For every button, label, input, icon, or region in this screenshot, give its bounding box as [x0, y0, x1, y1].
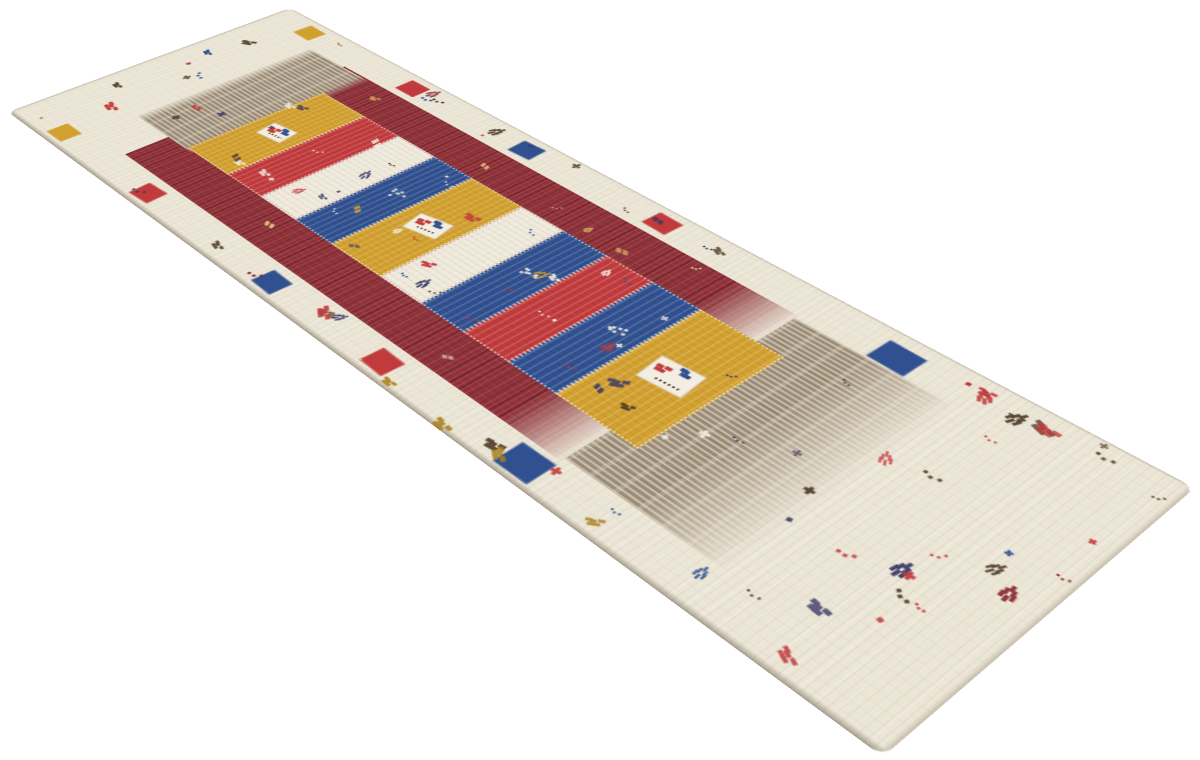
border-square-top-0 — [293, 25, 327, 41]
motif-sq — [39, 117, 43, 119]
rug — [8, 8, 1195, 757]
motif-dots — [622, 277, 626, 279]
motif-star — [187, 63, 190, 64]
motif-animal — [1040, 425, 1052, 432]
motif-dots — [897, 589, 902, 592]
motif-dots — [835, 549, 841, 553]
edge-near — [876, 484, 1195, 757]
motif-animal — [322, 308, 328, 313]
motif-sq — [876, 617, 886, 624]
motif-star — [185, 76, 189, 78]
motif-dots — [465, 316, 469, 318]
motif-star — [663, 317, 667, 319]
motif-dots — [747, 589, 752, 593]
motif-plant — [883, 460, 888, 466]
motif-dots — [1008, 413, 1012, 415]
motif-dots — [432, 98, 436, 100]
motif-plant — [425, 94, 432, 97]
motif-animal — [717, 249, 723, 253]
motif-dots — [198, 72, 201, 73]
motif-plant — [332, 316, 338, 318]
motif-star — [906, 573, 912, 577]
pictograph-blue-animal — [434, 221, 442, 225]
motif-plant — [890, 569, 900, 576]
motif-animal — [215, 242, 221, 246]
motif-sq — [480, 134, 484, 136]
motif-dots — [702, 245, 705, 247]
pictograph-blue-animal — [282, 129, 290, 133]
motif-star — [1102, 445, 1107, 448]
motif-animal — [497, 450, 503, 456]
motif-plant — [1001, 595, 1010, 603]
photo-canvas — [0, 0, 1200, 760]
motif-plant — [1005, 419, 1016, 424]
motif-dots — [1151, 495, 1154, 497]
motif-dots — [930, 554, 934, 557]
motif-animal — [108, 104, 114, 108]
motif-star — [1007, 552, 1010, 554]
motif-plant — [982, 398, 986, 404]
motif-dots — [914, 603, 918, 606]
motif-star — [574, 165, 578, 167]
motif-dots — [726, 374, 729, 376]
motif-animal — [813, 602, 824, 610]
motif-plant — [488, 131, 496, 134]
motif-animal — [115, 83, 119, 85]
motif-dots — [610, 508, 614, 510]
motif-dots — [1094, 451, 1100, 455]
motif-star — [552, 469, 557, 473]
motif-dots — [923, 470, 929, 474]
pictograph-blue-animal — [681, 369, 691, 375]
motif-animal — [244, 41, 251, 43]
motif-animal — [588, 519, 596, 523]
pictograph-squiggle — [416, 226, 435, 234]
motif-dots — [843, 378, 846, 380]
motif-star — [1091, 540, 1095, 542]
motif-animal — [784, 650, 793, 658]
motif-dots — [338, 42, 340, 43]
motif-animal — [487, 440, 497, 446]
motif-dots — [1056, 574, 1060, 577]
motif-animal — [981, 389, 990, 394]
pictograph-red-animal — [417, 218, 425, 222]
motif-plant — [694, 574, 702, 580]
motif-plant — [985, 569, 995, 574]
motif-dots — [247, 272, 252, 275]
motif-dots — [420, 97, 424, 99]
motif-dots — [623, 208, 626, 209]
pictograph-squiggle — [268, 132, 282, 138]
motif-dots — [983, 435, 987, 438]
pictograph-red-animal — [656, 363, 666, 369]
motif-sq — [964, 382, 971, 387]
motif-animal — [206, 50, 210, 52]
